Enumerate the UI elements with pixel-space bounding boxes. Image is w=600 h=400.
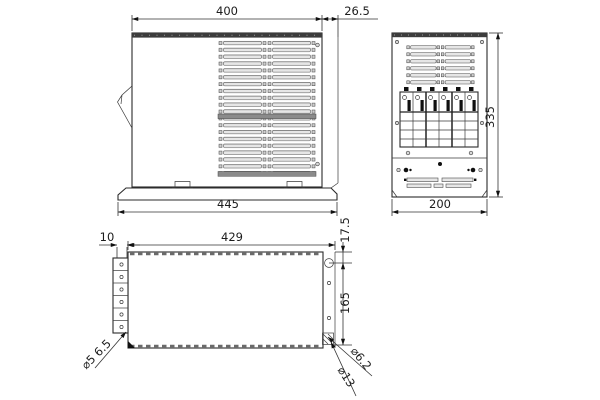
dim-depth-label: 200 (429, 197, 451, 211)
top-view-vent-grille (218, 40, 316, 177)
breaker-bank (400, 87, 478, 147)
front-view-top-band (392, 33, 487, 37)
dim-body-width: 400 (132, 4, 322, 31)
screw-icon (480, 40, 483, 43)
dim-base-width-label: 445 (217, 197, 239, 211)
dim-height-label: 335 (483, 106, 497, 128)
connector-dot (471, 168, 476, 173)
technical-drawing-canvas: 400 26.5 445 (0, 0, 600, 400)
callout-left-slot: ⌀5 6.5 (78, 332, 126, 372)
front-view-vent-grille (406, 44, 475, 86)
dim-body-width-label: 400 (216, 4, 238, 18)
top-view-dark-band-1 (218, 114, 316, 119)
screw-icon (479, 168, 482, 171)
dim-hole-span: 165 (334, 263, 352, 345)
dim-inner-width: 429 (128, 230, 335, 250)
top-view: 400 26.5 445 (118, 4, 379, 216)
bottom-view-body (128, 252, 323, 348)
bottom-view-right-strip (323, 252, 336, 348)
hole-small (327, 316, 330, 319)
screw-icon (316, 162, 320, 166)
bottom-view: 10 429 17.5 165 ⌀5 6.5 (78, 217, 374, 396)
top-view-top-band (132, 33, 322, 38)
dim-hole-span-label: 165 (338, 292, 352, 314)
bottom-view-left-strip (113, 258, 128, 333)
dim-hole-offset-label: 17.5 (338, 217, 352, 243)
hole-small (327, 281, 330, 284)
dim-tab-width-label: 10 (100, 230, 115, 244)
dim-hole-offset: 17.5 (329, 217, 352, 263)
screw-icon (316, 43, 320, 47)
screw-icon (395, 40, 398, 43)
top-view-dark-band-2 (218, 172, 316, 177)
dim-inner-width-label: 429 (221, 230, 243, 244)
keyhole-slot (323, 333, 334, 345)
drawing-svg: 400 26.5 445 (0, 0, 600, 400)
screw-icon (469, 151, 473, 155)
top-view-left-bracket (118, 86, 133, 128)
dim-rear-overhang: 26.5 (322, 4, 378, 37)
connector-dot (404, 168, 409, 173)
screw-icon (395, 121, 398, 124)
screw-icon (397, 168, 400, 171)
dim-depth: 200 (392, 197, 487, 216)
callout-keyhole-large-label: ⌀13 (335, 364, 358, 390)
dim-rear-overhang-label: 26.5 (344, 4, 370, 18)
front-view: 335 200 (392, 33, 503, 216)
screw-icon (406, 151, 410, 155)
connector-dot (438, 162, 442, 166)
